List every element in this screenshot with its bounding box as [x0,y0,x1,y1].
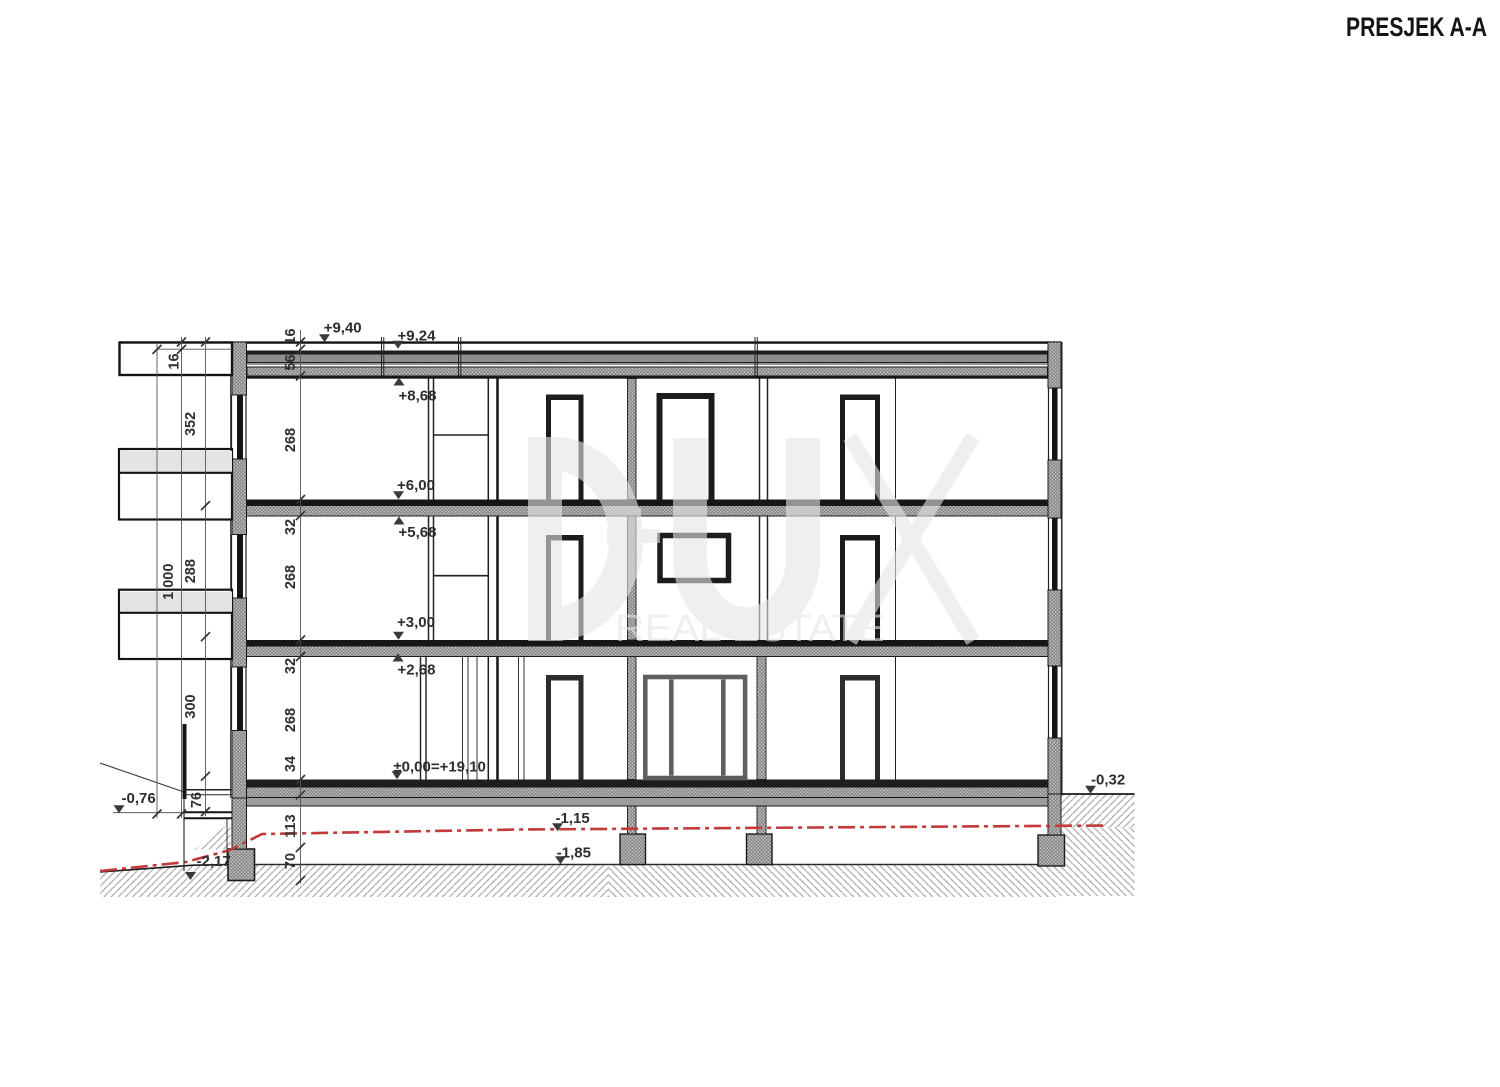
svg-text:113: 113 [283,814,299,837]
svg-text:PRESJEK A-A: PRESJEK A-A [1346,12,1487,42]
svg-text:-0,76: -0,76 [122,790,156,807]
svg-text:+3,00: +3,00 [397,614,435,631]
svg-text:16: 16 [283,328,299,344]
svg-text:±0,00=+19,10: ±0,00=+19,10 [393,759,485,776]
svg-text:34: 34 [283,756,299,772]
svg-text:56: 56 [283,354,299,370]
svg-text:352: 352 [183,412,199,436]
svg-text:-2,17: -2,17 [197,853,231,870]
svg-text:16: 16 [167,353,183,369]
svg-text:-0,32: -0,32 [1091,772,1125,789]
svg-text:300: 300 [183,694,199,718]
svg-text:268: 268 [283,565,299,589]
svg-text:+9,40: +9,40 [324,320,362,337]
svg-text:+9,24: +9,24 [398,328,437,345]
svg-text:REAL ESTATE: REAL ESTATE [615,608,885,650]
svg-text:32: 32 [283,519,299,535]
svg-text:32: 32 [283,658,299,674]
svg-text:268: 268 [283,708,299,732]
svg-text:+2,68: +2,68 [398,662,436,679]
svg-text:76: 76 [189,792,205,808]
svg-text:288: 288 [183,559,199,583]
svg-text:+5,68: +5,68 [399,524,437,541]
svg-text:+8,68: +8,68 [399,388,437,405]
svg-text:70: 70 [283,853,299,869]
svg-text:1.000: 1.000 [161,564,177,600]
svg-text:268: 268 [283,428,299,452]
